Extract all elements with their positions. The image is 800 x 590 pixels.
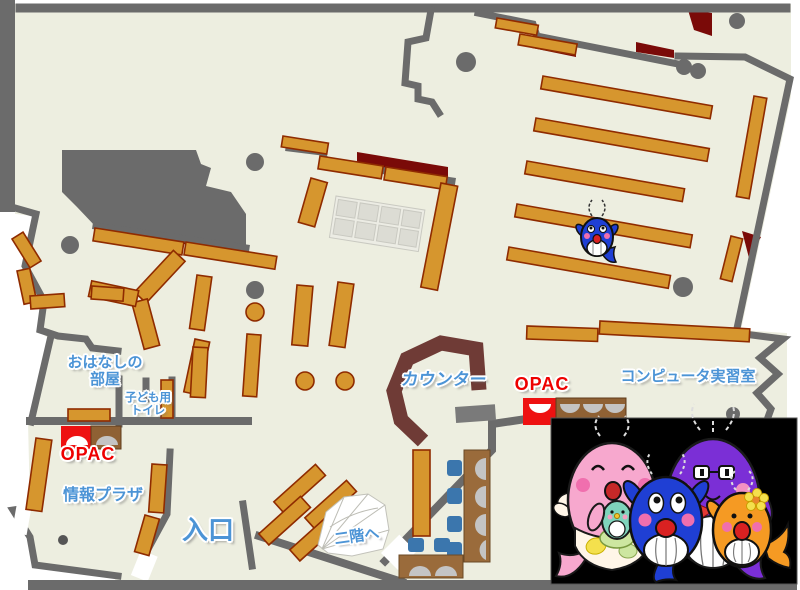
label-opac-left: OPAC: [48, 444, 128, 465]
mascot-panel: [551, 404, 797, 584]
label-kids-toilet: 子ども用 トイレ: [112, 392, 184, 418]
label-info-plaza: 情報プラザ: [48, 487, 158, 505]
label-storytelling-room: おはなしの 部屋: [40, 354, 170, 389]
label-counter: カウンター: [397, 370, 492, 390]
label-opac-right: OPAC: [502, 374, 582, 395]
label-entrance: 入口: [168, 516, 248, 546]
label-computer-room: コンピュータ実習室: [606, 368, 770, 385]
copier: [455, 404, 496, 423]
library-floor-map: おはなしの 部屋 子ども用 トイレ OPAC 情報プラザ 入口 二階へ カウンタ…: [0, 0, 800, 590]
